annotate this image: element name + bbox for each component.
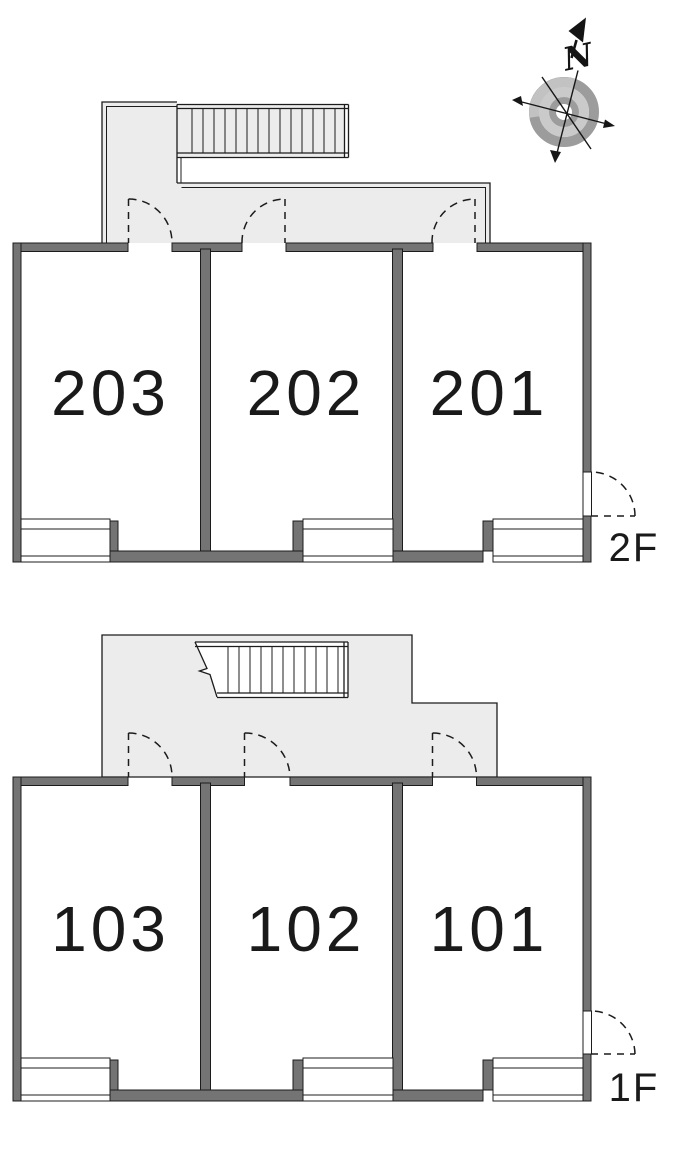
- room-label-202: 202: [247, 357, 366, 429]
- room-label-103: 103: [51, 893, 170, 965]
- porch-1f: [102, 635, 497, 777]
- floor-plan-1f: 103 102 101 1F: [13, 635, 659, 1110]
- exterior-wall-top: [13, 777, 128, 786]
- side-door-arc-2f: [591, 472, 635, 516]
- floor-plan-page: N: [0, 0, 676, 1160]
- partition-wall: [201, 249, 211, 562]
- partition-wall: [201, 783, 211, 1101]
- side-door-opening-1f: [583, 1011, 592, 1054]
- floor-label-2f: 2F: [609, 526, 660, 570]
- exterior-wall-right: [583, 777, 591, 1011]
- exterior-wall-right: [583, 243, 591, 472]
- floor-plan-drawing: N: [0, 0, 676, 1160]
- window-201: [493, 519, 583, 562]
- window-202: [303, 519, 393, 562]
- partition-wall: [393, 249, 403, 562]
- room-label-201: 201: [430, 357, 549, 429]
- partition-wall: [393, 783, 403, 1101]
- window-203: [21, 519, 110, 562]
- exterior-wall-top: [13, 243, 128, 252]
- side-door-arc-1f: [591, 1011, 635, 1054]
- windows-2f: [21, 472, 592, 562]
- north-label: N: [559, 35, 598, 79]
- exterior-wall-bottom: [110, 551, 303, 562]
- floor-plan-2f: 203 202 201 2F: [13, 102, 659, 570]
- side-door-opening-2f: [583, 472, 592, 516]
- room-label-101: 101: [430, 893, 549, 965]
- window-102: [303, 1058, 393, 1101]
- windows-1f: [21, 1011, 592, 1101]
- room-label-203: 203: [51, 357, 170, 429]
- compass-rose: N: [512, 18, 615, 164]
- balcony-2f: [102, 102, 490, 243]
- floor-label-1f: 1F: [609, 1066, 660, 1110]
- exterior-wall-bottom: [110, 1090, 303, 1101]
- exterior-wall-left: [13, 777, 21, 1101]
- stairs-1f: [195, 642, 348, 698]
- room-label-102: 102: [247, 893, 366, 965]
- exterior-wall-left: [13, 243, 21, 562]
- window-103: [21, 1058, 110, 1101]
- window-101: [493, 1058, 583, 1101]
